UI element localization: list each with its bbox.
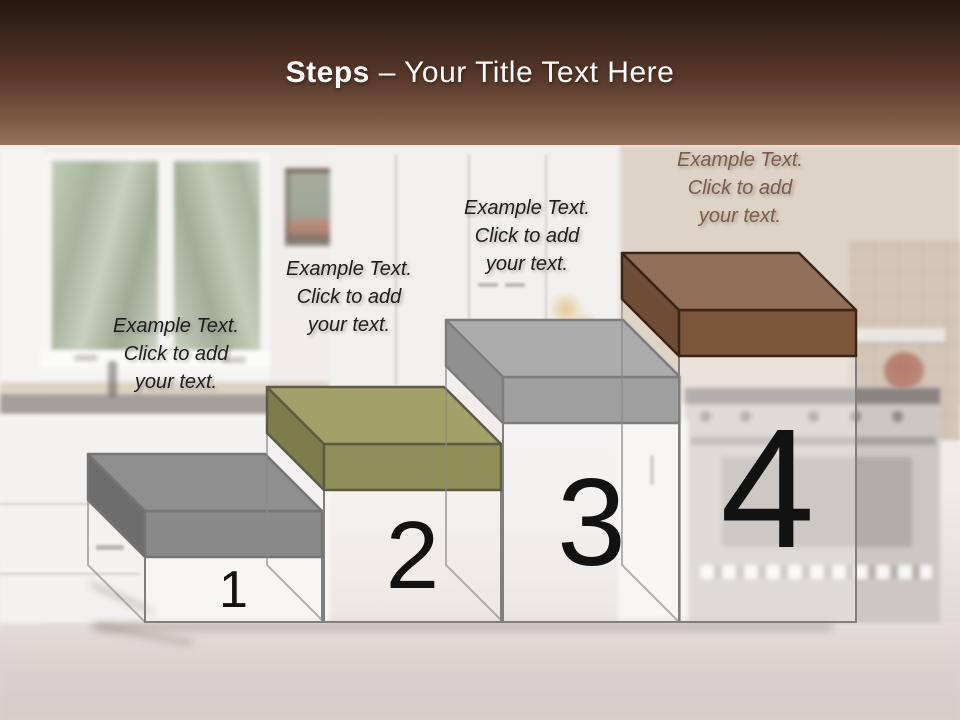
cap-front-face <box>324 444 501 490</box>
cap-front-face <box>145 511 322 557</box>
step-number-4: 4 <box>679 356 856 622</box>
cap-front-face <box>503 377 680 423</box>
example-text-step-1[interactable]: Example Text. Click to add your text. <box>91 312 261 396</box>
example-text-line: Click to add <box>442 222 612 250</box>
step-number-2: 2 <box>324 490 501 622</box>
example-text-line: Example Text. <box>655 146 825 174</box>
slide-title[interactable]: Steps – Your Title Text Here <box>286 56 675 90</box>
example-text-step-3[interactable]: Example Text. Click to add your text. <box>442 194 612 278</box>
example-text-line: your text. <box>91 368 261 396</box>
example-text-line: Example Text. <box>442 194 612 222</box>
example-text-line: your text. <box>655 202 825 230</box>
step-number-1: 1 <box>145 557 322 622</box>
example-text-line: your text. <box>442 250 612 278</box>
example-text-line: Click to add <box>264 283 434 311</box>
example-text-line: Click to add <box>655 174 825 202</box>
example-text-step-2[interactable]: Example Text. Click to add your text. <box>264 255 434 339</box>
cap-front-face <box>679 310 856 356</box>
example-text-step-4[interactable]: Example Text. Click to add your text. <box>655 146 825 230</box>
title-bar: Steps – Your Title Text Here <box>0 0 960 145</box>
example-text-line: your text. <box>264 311 434 339</box>
step-number-3: 3 <box>503 423 680 622</box>
title-keyword: Steps <box>286 56 370 89</box>
example-text-line: Example Text. <box>264 255 434 283</box>
slide: 1 2 3 4 Example Text. Click to add your … <box>0 0 960 720</box>
example-text-line: Example Text. <box>91 312 261 340</box>
example-text-line: Click to add <box>91 340 261 368</box>
title-rest: – Your Title Text Here <box>370 56 674 89</box>
